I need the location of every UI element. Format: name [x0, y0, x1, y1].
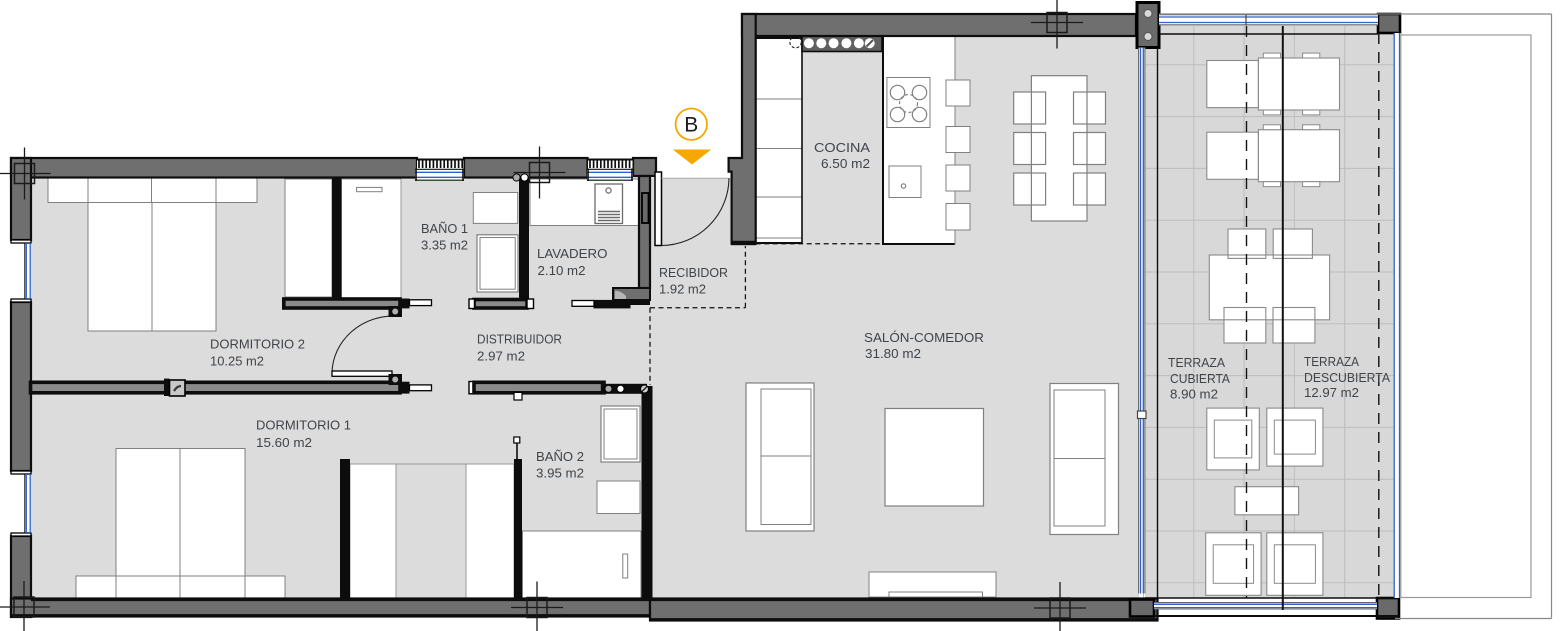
svg-text:3.95 m2: 3.95 m2 — [536, 466, 584, 481]
svg-text:DESCUBIERTA: DESCUBIERTA — [1304, 370, 1390, 385]
svg-text:DISTRIBUIDOR: DISTRIBUIDOR — [477, 332, 562, 347]
svg-text:2.10 m2: 2.10 m2 — [538, 263, 586, 278]
svg-text:6.50 m2: 6.50 m2 — [821, 156, 870, 171]
svg-text:BAÑO 1: BAÑO 1 — [421, 221, 468, 236]
svg-text:8.90 m2: 8.90 m2 — [1170, 387, 1218, 402]
svg-text:3.35 m2: 3.35 m2 — [421, 238, 468, 253]
svg-text:COCINA: COCINA — [814, 140, 870, 155]
svg-text:DORMITORIO 1: DORMITORIO 1 — [256, 418, 351, 433]
svg-text:12.97 m2: 12.97 m2 — [1304, 385, 1359, 400]
svg-text:10.25 m2: 10.25 m2 — [210, 354, 264, 369]
svg-text:1.92 m2: 1.92 m2 — [659, 282, 706, 297]
svg-text:31.80 m2: 31.80 m2 — [865, 346, 921, 361]
svg-text:2.97 m2: 2.97 m2 — [477, 349, 525, 364]
svg-text:B: B — [684, 114, 698, 137]
svg-text:SALÓN-COMEDOR: SALÓN-COMEDOR — [864, 330, 984, 345]
svg-text:15.60 m2: 15.60 m2 — [256, 435, 312, 450]
svg-text:LAVADERO: LAVADERO — [537, 246, 608, 261]
svg-text:CUBIERTA: CUBIERTA — [1170, 371, 1230, 386]
svg-text:TERRAZA: TERRAZA — [1304, 354, 1359, 369]
svg-text:TERRAZA: TERRAZA — [1168, 355, 1225, 370]
svg-text:DORMITORIO 2: DORMITORIO 2 — [210, 337, 305, 352]
svg-text:BAÑO 2: BAÑO 2 — [536, 449, 584, 464]
svg-text:RECIBIDOR: RECIBIDOR — [659, 265, 728, 280]
